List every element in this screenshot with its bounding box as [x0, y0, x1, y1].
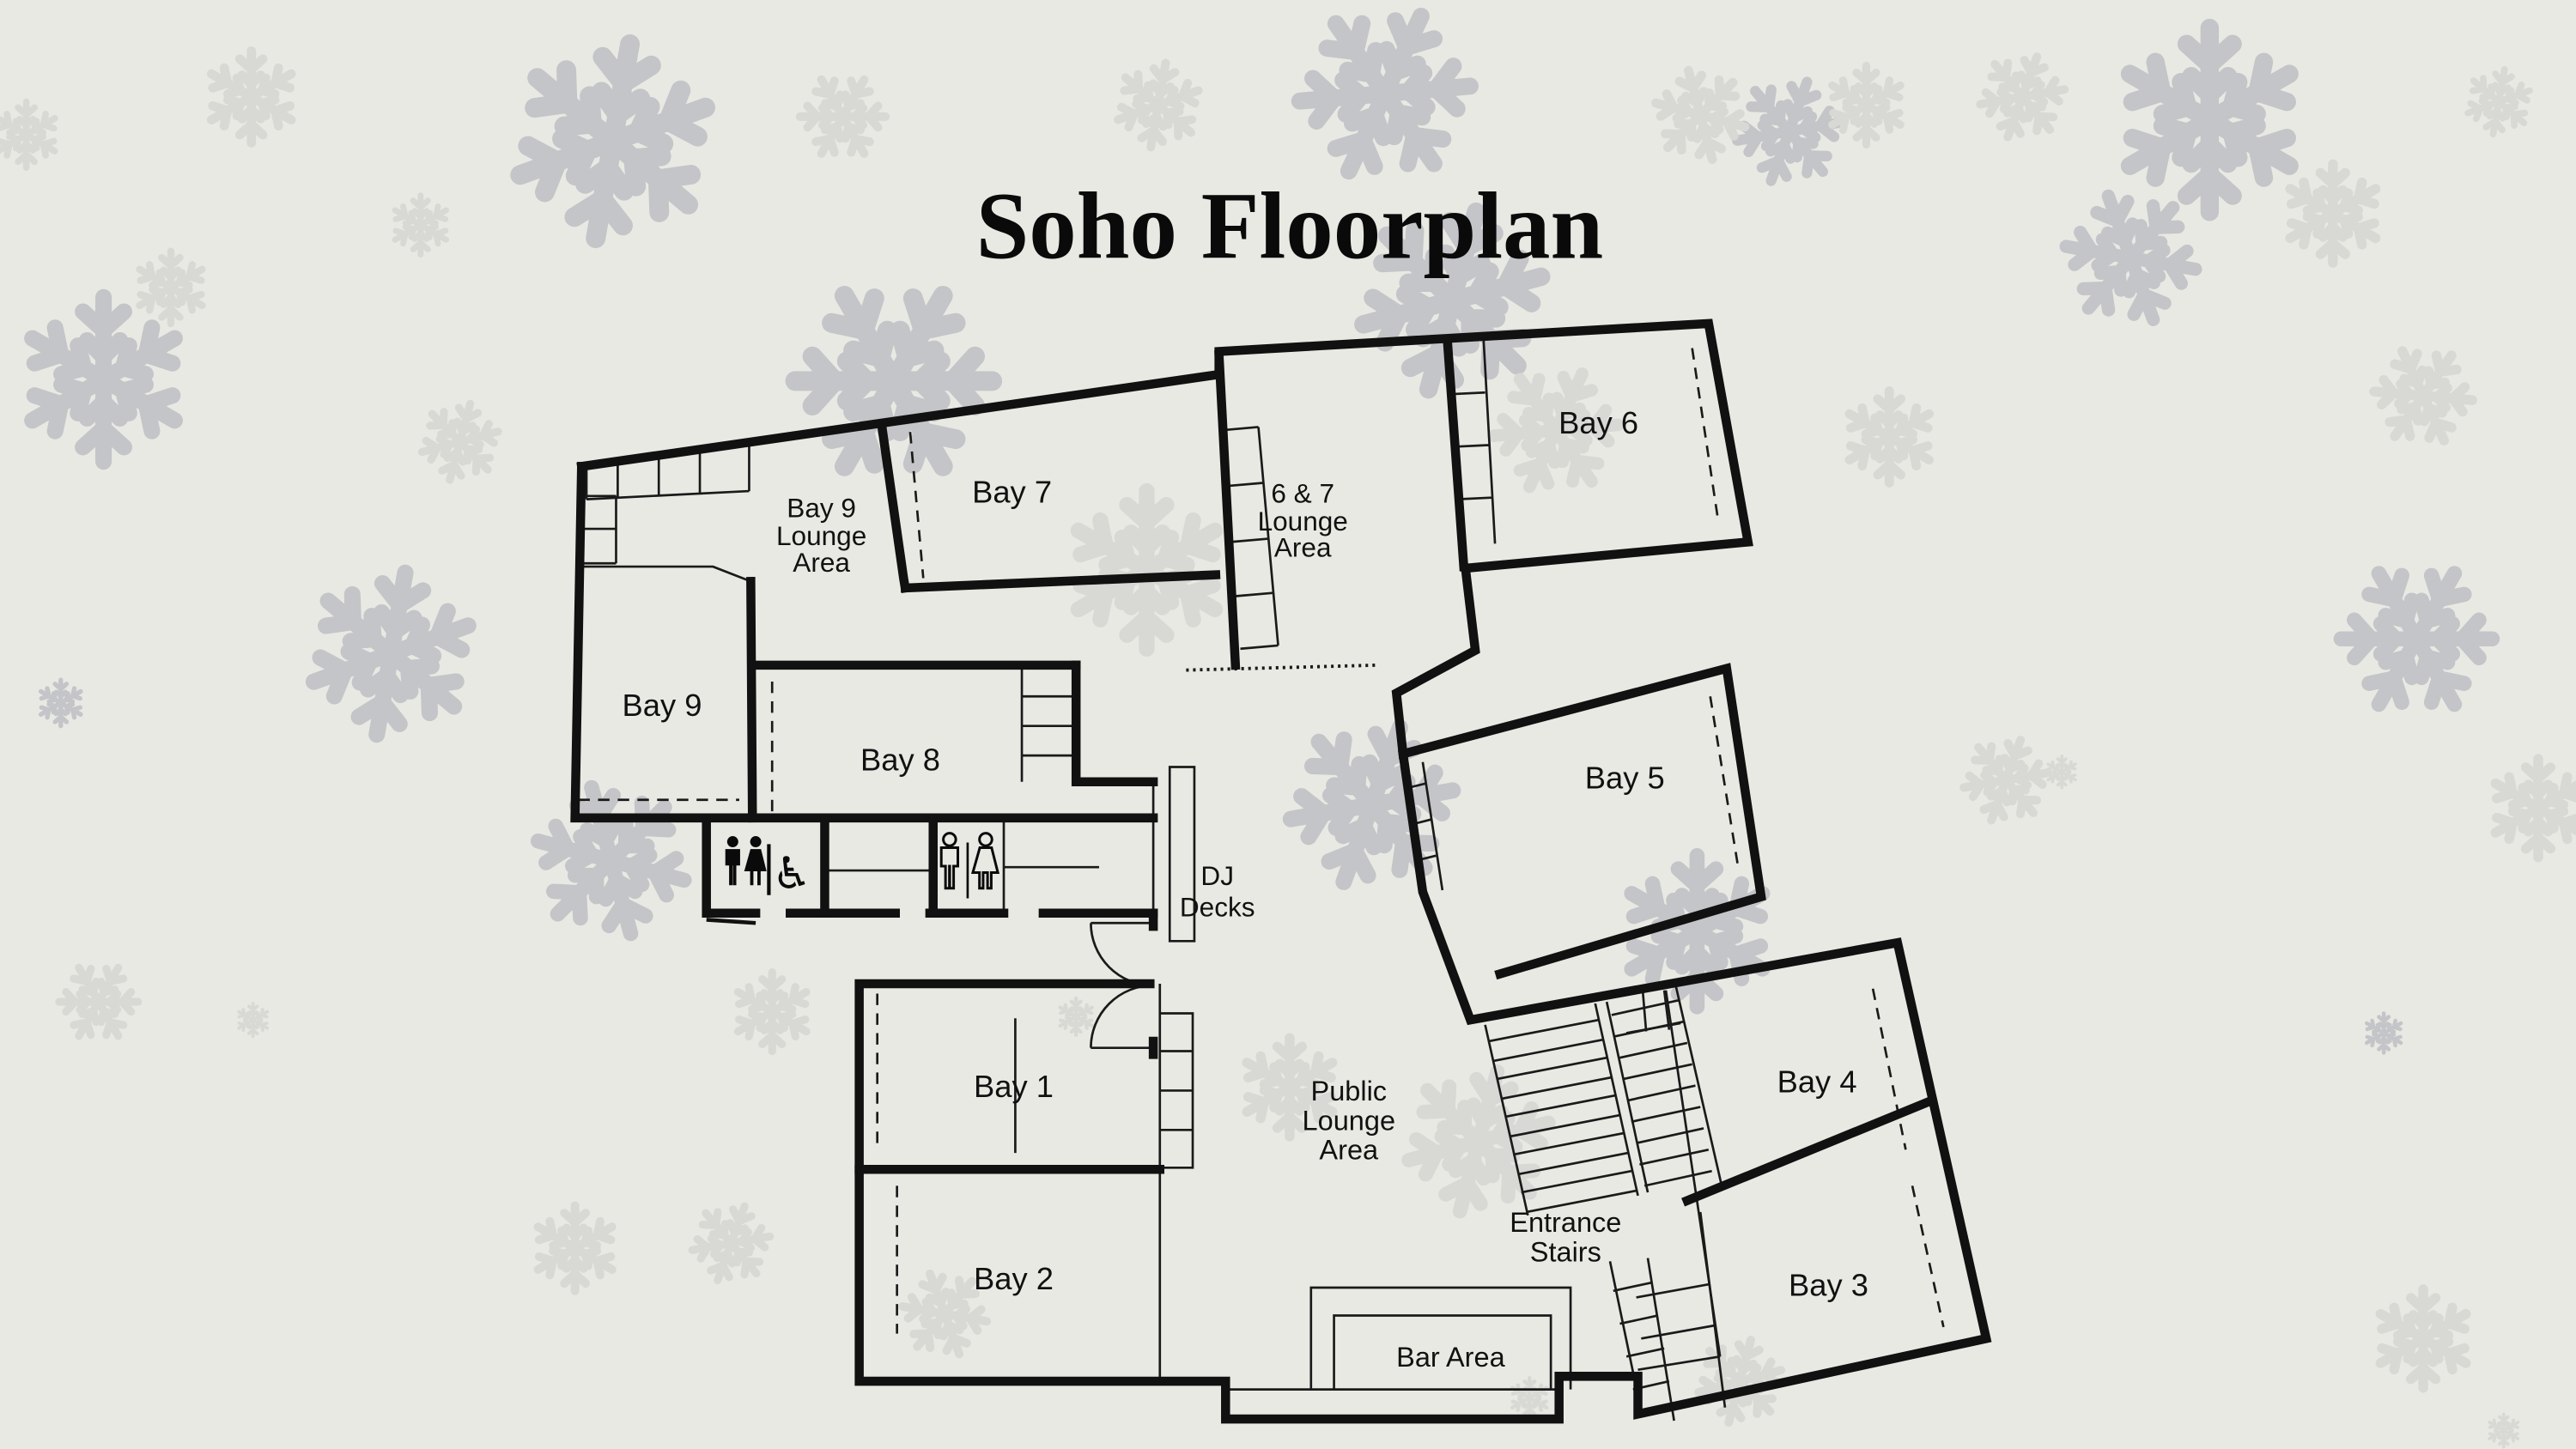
room-label-dj-2: Decks	[1180, 892, 1255, 923]
room-label-entrance-stairs-2: Stairs	[1530, 1236, 1601, 1267]
room-label-67-lounge-1: 6 & 7	[1271, 477, 1334, 508]
floorplan-page: ♿ Soho Floorplan Bay 9 Lounge Area 6 & 7…	[0, 0, 2576, 1449]
room-label-bay5: Bay 5	[1585, 760, 1665, 795]
floorplan-canvas: ♿ Soho Floorplan Bay 9 Lounge Area 6 & 7…	[0, 0, 2576, 1449]
room-label-bar-area: Bar Area	[1396, 1342, 1505, 1373]
room-label-bay4: Bay 4	[1777, 1064, 1857, 1099]
room-label-bay6: Bay 6	[1558, 405, 1638, 440]
room-label-public-lounge-1: Public	[1311, 1076, 1388, 1106]
room-label-bay8: Bay 8	[860, 742, 940, 777]
room-label-67-lounge-3: Area	[1274, 532, 1332, 563]
room-label-public-lounge-2: Lounge	[1303, 1105, 1396, 1136]
room-label-bay9: Bay 9	[623, 688, 702, 723]
page-title: Soho Floorplan	[976, 173, 1604, 279]
room-label-bay1: Bay 1	[974, 1069, 1054, 1104]
room-label-bay3: Bay 3	[1789, 1268, 1868, 1303]
room-label-bay9-lounge-1: Bay 9	[787, 493, 856, 524]
room-label-bay9-lounge-3: Area	[793, 547, 850, 578]
room-label-public-lounge-3: Area	[1319, 1135, 1379, 1166]
room-label-bay2: Bay 2	[974, 1261, 1054, 1296]
room-label-entrance-stairs-1: Entrance	[1510, 1207, 1621, 1238]
room-label-bay7: Bay 7	[972, 474, 1052, 509]
room-label-dj-1: DJ	[1200, 860, 1234, 891]
wheelchair-icon: ♿	[772, 848, 811, 900]
